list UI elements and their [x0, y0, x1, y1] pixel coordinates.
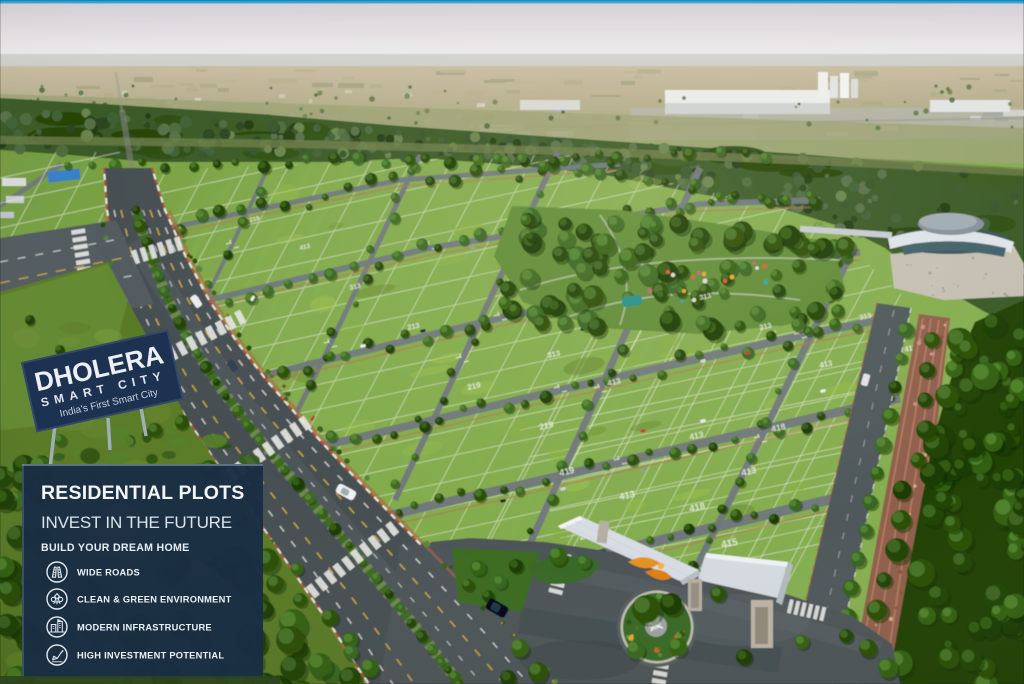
svg-text:HIGH INVESTMENT POTENTIAL: HIGH INVESTMENT POTENTIAL	[77, 651, 224, 661]
svg-text:CLEAN & GREEN ENVIRONMENT: CLEAN & GREEN ENVIRONMENT	[77, 595, 232, 605]
svg-text:WIDE ROADS: WIDE ROADS	[77, 568, 140, 578]
svg-text:MODERN INFRASTRUCTURE: MODERN INFRASTRUCTURE	[77, 623, 212, 633]
svg-text:BUILD YOUR DREAM HOME: BUILD YOUR DREAM HOME	[41, 542, 190, 554]
svg-text:INVEST IN THE FUTURE: INVEST IN THE FUTURE	[41, 513, 232, 532]
svg-text:RESIDENTIAL PLOTS: RESIDENTIAL PLOTS	[41, 482, 244, 504]
